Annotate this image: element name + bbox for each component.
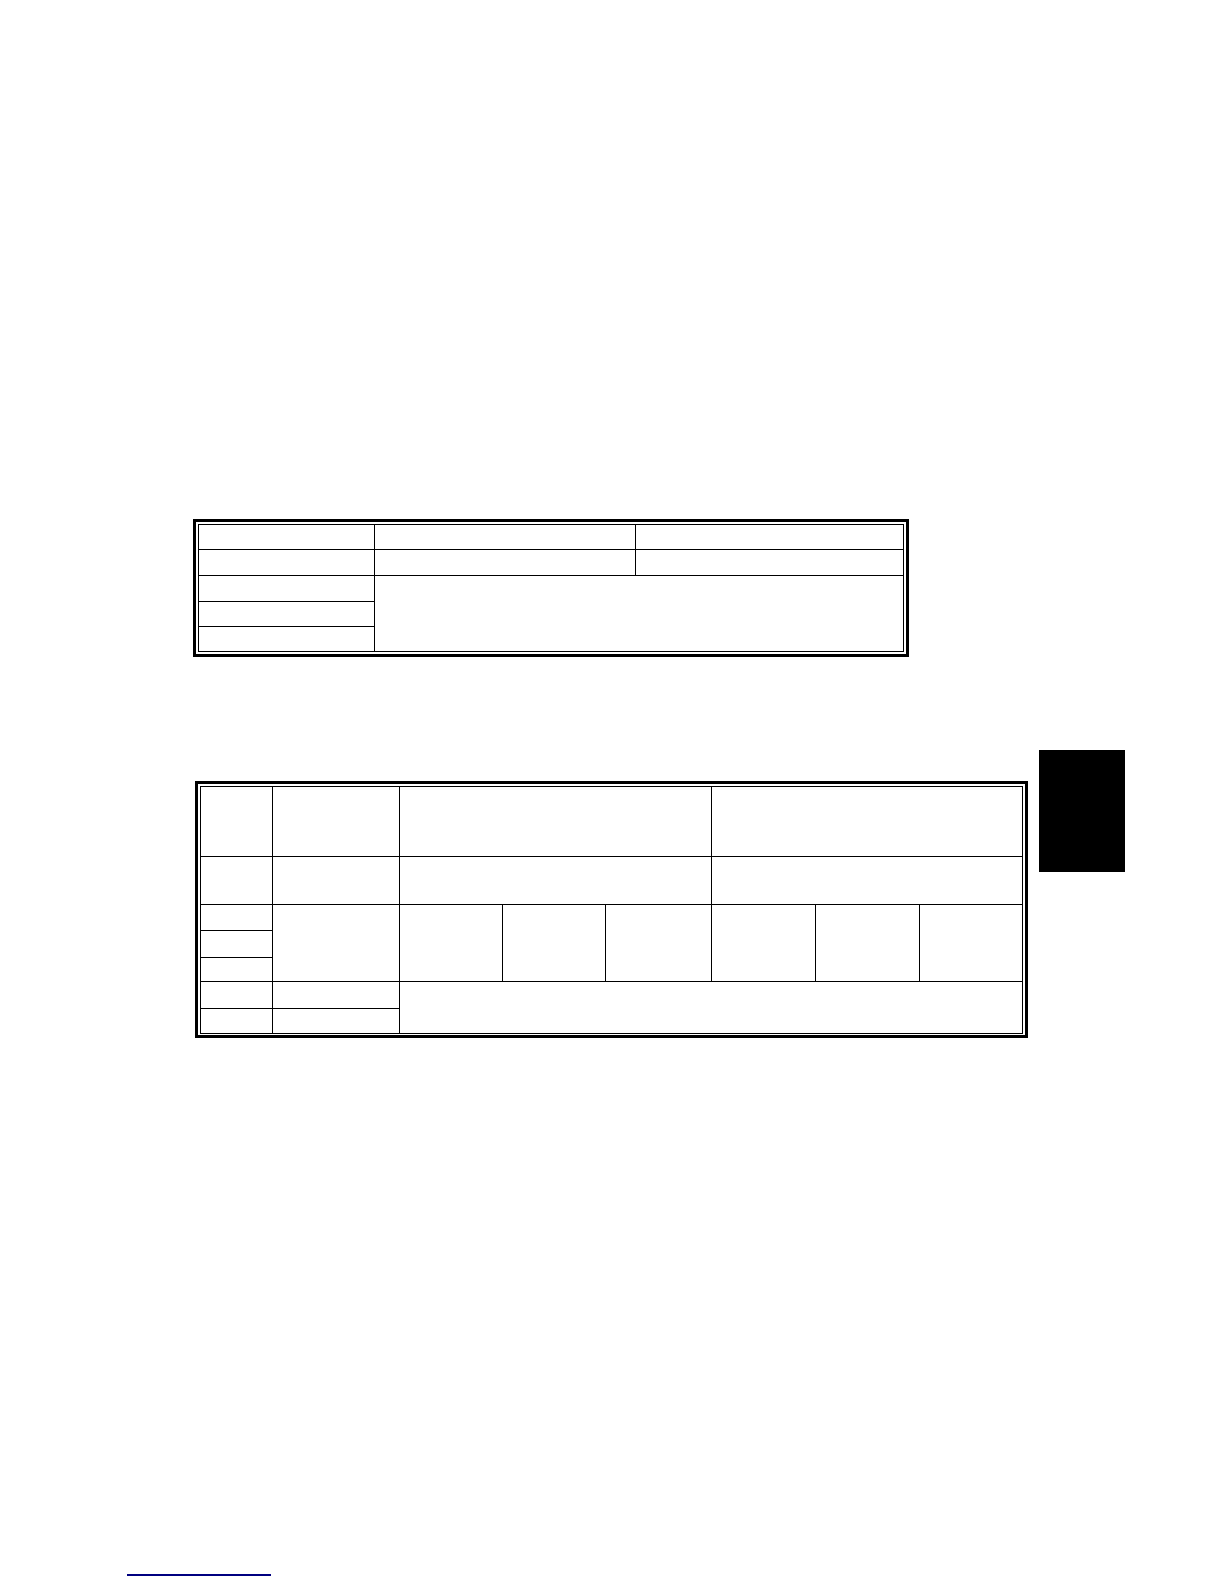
page-edge-tab xyxy=(1039,750,1125,872)
table-cell xyxy=(201,905,273,931)
document-page xyxy=(0,0,1224,1584)
merged-table-cell xyxy=(712,787,1023,857)
table-cell xyxy=(399,905,503,982)
table-cell xyxy=(199,602,375,627)
table-row xyxy=(199,576,904,602)
lower-table-frame xyxy=(195,781,1028,1038)
table-cell xyxy=(201,1009,273,1034)
table-cell xyxy=(374,525,636,550)
table-row xyxy=(199,550,904,576)
table-cell xyxy=(201,931,273,958)
table-cell xyxy=(503,905,606,982)
table-cell xyxy=(199,627,375,652)
table-cell xyxy=(712,905,816,982)
lower-table xyxy=(200,786,1023,1034)
table-cell xyxy=(636,525,904,550)
table-cell xyxy=(272,857,399,905)
table-cell xyxy=(272,787,399,857)
table-cell xyxy=(201,958,273,982)
table-cell xyxy=(815,905,919,982)
table-row xyxy=(201,982,1023,1009)
merged-table-cell xyxy=(399,982,1022,1034)
merged-table-cell xyxy=(374,576,903,652)
table-row xyxy=(201,787,1023,857)
table-row xyxy=(201,905,1023,931)
table-cell xyxy=(201,982,273,1009)
merged-table-cell xyxy=(712,857,1023,905)
table-cell xyxy=(201,857,273,905)
upper-table xyxy=(198,524,904,652)
table-cell xyxy=(374,550,636,576)
merged-table-cell xyxy=(399,857,711,905)
table-cell xyxy=(636,550,904,576)
merged-table-cell xyxy=(399,787,711,857)
table-row xyxy=(201,857,1023,905)
table-cell xyxy=(920,905,1023,982)
table-cell xyxy=(199,576,375,602)
table-row xyxy=(199,525,904,550)
footer-link-underline[interactable] xyxy=(127,1574,271,1576)
table-cell xyxy=(606,905,712,982)
table-cell xyxy=(272,982,399,1009)
merged-table-cell xyxy=(272,905,399,982)
upper-table-frame xyxy=(193,519,909,657)
table-cell xyxy=(199,550,375,576)
table-cell xyxy=(199,525,375,550)
table-cell xyxy=(201,787,273,857)
table-cell xyxy=(272,1009,399,1034)
